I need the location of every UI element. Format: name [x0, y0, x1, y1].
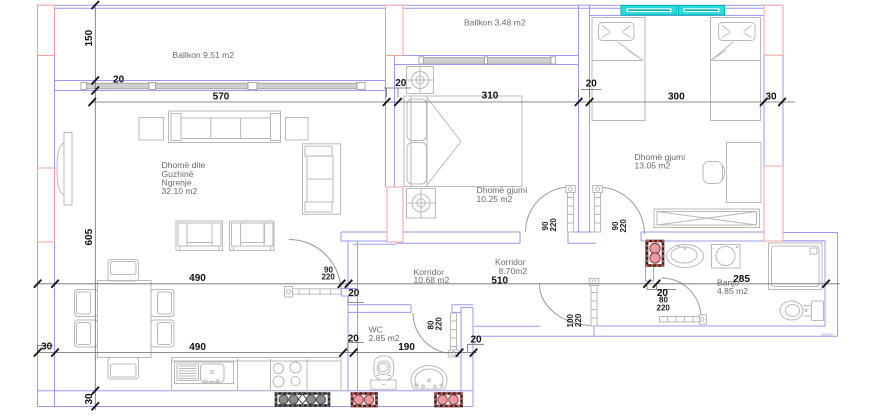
- svg-text:490: 490: [189, 342, 206, 353]
- svg-text:32.10 m2: 32.10 m2: [162, 186, 198, 196]
- svg-text:30: 30: [41, 342, 53, 353]
- svg-text:20: 20: [586, 79, 598, 90]
- svg-text:490: 490: [189, 273, 206, 284]
- svg-text:20: 20: [470, 334, 482, 345]
- svg-text:150: 150: [84, 29, 95, 46]
- svg-text:4.85 m2: 4.85 m2: [717, 286, 748, 296]
- svg-text:10.68 m2: 10.68 m2: [414, 275, 450, 285]
- svg-text:570: 570: [213, 92, 230, 103]
- svg-text:220: 220: [435, 317, 444, 331]
- svg-text:605: 605: [84, 228, 95, 245]
- svg-text:220: 220: [619, 219, 628, 233]
- svg-text:220: 220: [657, 304, 671, 313]
- svg-text:20: 20: [348, 334, 360, 345]
- svg-text:30: 30: [765, 92, 777, 103]
- svg-text:13.05 m2: 13.05 m2: [635, 160, 671, 170]
- svg-text:30: 30: [84, 393, 95, 405]
- svg-text:10.25 m2: 10.25 m2: [477, 194, 513, 204]
- svg-text:220: 220: [549, 218, 558, 232]
- svg-text:Ballkon 3.48 m2: Ballkon 3.48 m2: [464, 18, 526, 28]
- svg-text:Ballkon 9.51 m2: Ballkon 9.51 m2: [173, 50, 235, 60]
- svg-text:20: 20: [113, 75, 125, 86]
- svg-text:2.85 m2: 2.85 m2: [369, 333, 400, 343]
- svg-text:310: 310: [482, 91, 499, 102]
- svg-text:220: 220: [322, 273, 336, 282]
- svg-text:510: 510: [491, 275, 508, 286]
- svg-text:300: 300: [668, 92, 685, 103]
- svg-text:220: 220: [574, 313, 583, 327]
- svg-text:190: 190: [398, 342, 415, 353]
- svg-text:8.70m2: 8.70m2: [499, 266, 528, 276]
- svg-text:20: 20: [348, 288, 360, 299]
- svg-text:20: 20: [395, 78, 407, 89]
